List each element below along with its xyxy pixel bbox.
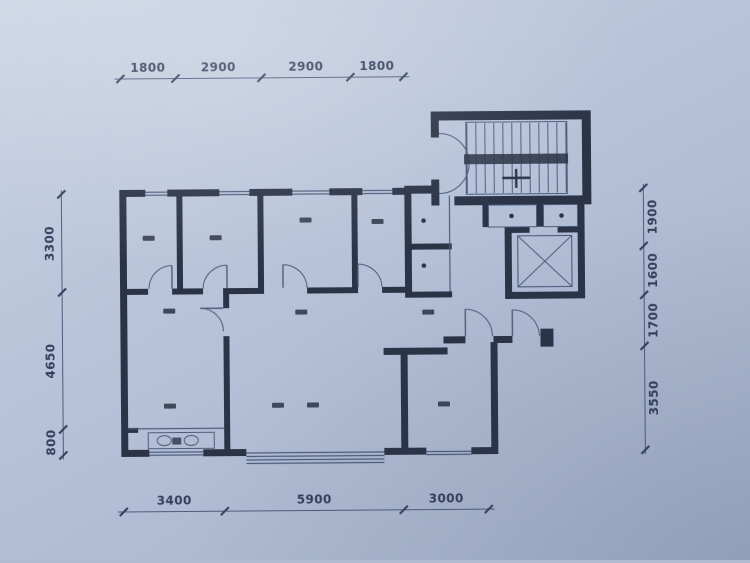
room-label-mark: [295, 310, 307, 315]
stair-wall: [431, 179, 439, 205]
wall-segment: [471, 447, 498, 454]
elevator-wall: [505, 227, 530, 233]
wall-segment: [172, 288, 203, 294]
dim-label-right-2: 1700: [646, 303, 660, 338]
dimension-line-bottom: 340059003000: [118, 491, 495, 516]
wall-segment: [249, 189, 292, 196]
wall-segment: [227, 288, 264, 294]
door-unit-entry-right-arc: [512, 310, 539, 336]
service-shafts: [421, 204, 585, 268]
shaft-wall: [577, 204, 584, 226]
screenshot-root: { "colors": { "paper": "#b7c3d9", "ink":…: [0, 0, 750, 560]
dim-label-left-0: 3300: [43, 226, 57, 261]
dim-label-left-1: 4650: [43, 343, 57, 378]
elevator-shaft: [505, 226, 586, 299]
dimension-line-top: 1800290029001800: [114, 59, 409, 83]
wall-segment: [203, 449, 246, 456]
door-unit-entry-left-arc: [465, 309, 492, 336]
shaft-dot: [421, 218, 426, 223]
room-label-mark: [163, 309, 175, 314]
dim-line: [118, 509, 495, 512]
room-label-mark: [307, 402, 319, 407]
sink-fitting: [172, 438, 181, 445]
balcony-railing-line: [246, 462, 384, 463]
room-label-mark: [372, 219, 384, 224]
dim-label-left-2: 800: [44, 429, 58, 455]
room-label-mark: [438, 401, 450, 406]
bay-window-inner-line: [128, 428, 224, 429]
stair-wall: [582, 110, 592, 204]
stair-center-rail: [464, 153, 568, 164]
wall-segment: [405, 243, 452, 249]
wall-segment: [540, 329, 553, 347]
door-swings: [149, 263, 540, 339]
balcony-railing-line: [246, 455, 384, 456]
wall-segment: [384, 347, 448, 355]
dim-label-bottom-0: 3400: [157, 493, 192, 507]
wall-segment: [401, 348, 409, 448]
room-label-mark: [143, 236, 155, 241]
wall-segment: [443, 336, 465, 343]
wall-segment: [223, 336, 230, 449]
room-label-mark: [164, 404, 176, 409]
balcony-railing-line: [246, 452, 384, 453]
room-label-mark: [300, 217, 312, 222]
floor-plan-drawing: 1800290029001800340059003000330046508001…: [0, 0, 750, 563]
door-bathroom-arc: [358, 264, 382, 287]
dim-label-right-1: 1600: [646, 253, 660, 288]
door-kitchen-arc: [200, 308, 223, 331]
door-bedroom-2-arc: [203, 265, 227, 288]
wall-segment: [490, 342, 498, 447]
wall-segment: [223, 288, 229, 308]
balcony-railing-line: [246, 459, 384, 460]
dim-label-bottom-1: 5900: [297, 492, 332, 506]
fixtures: [148, 432, 214, 449]
dim-label-top-3: 1800: [359, 59, 394, 73]
wall-segment: [382, 287, 405, 293]
wall-segment: [257, 194, 264, 288]
wall-segment: [176, 195, 183, 289]
door-bedroom-1-arc: [149, 266, 172, 289]
wall-segment: [167, 189, 219, 196]
dim-line: [61, 190, 63, 459]
shaft-edge-line: [449, 195, 450, 291]
stairwell: [431, 110, 592, 205]
shaft-dot: [559, 213, 564, 218]
dimension-line-right: 1900160017003550: [639, 184, 661, 454]
stair-wall: [431, 110, 591, 120]
elevator-wall: [505, 227, 513, 299]
shaft-wall: [482, 205, 488, 227]
dim-label-top-0: 1800: [130, 61, 165, 75]
dimension-line-left: 33004650800: [42, 190, 67, 459]
wall-segment: [121, 450, 149, 457]
walls: [119, 185, 554, 457]
dim-label-top-2: 2900: [288, 59, 323, 73]
wall-segment: [351, 193, 358, 287]
dim-label-right-0: 1900: [645, 199, 659, 234]
wall-segment: [493, 336, 512, 343]
stair-wall: [431, 111, 439, 137]
wall-segment: [405, 291, 452, 297]
room-label-mark: [272, 403, 284, 408]
wall-segment: [119, 190, 128, 457]
elevator-wall: [578, 226, 586, 298]
wall-segment: [120, 289, 148, 295]
dim-label-bottom-2: 3000: [429, 491, 464, 505]
dim-label-right-3: 3550: [647, 380, 661, 415]
dim-label-top-1: 2900: [201, 60, 236, 74]
wall-segment: [384, 448, 426, 455]
elevator-wall: [505, 291, 585, 299]
wall-segment: [329, 188, 362, 195]
elevator-wall: [558, 226, 585, 232]
wall-segment: [307, 287, 358, 293]
room-label-mark: [210, 235, 222, 240]
sink-basin: [184, 435, 198, 445]
drawing-tilt-wrap: 1800290029001800340059003000330046508001…: [0, 0, 750, 563]
room-label-mark: [422, 310, 434, 315]
shaft-wall: [536, 205, 543, 227]
wall-segment: [404, 188, 412, 298]
door-bedroom-3-arc: [283, 265, 307, 288]
stair-wall: [454, 195, 582, 205]
shaft-dot: [422, 263, 427, 268]
shaft-dot: [509, 214, 514, 219]
sink-basin: [157, 436, 171, 446]
floor-plan-photo: 1800290029001800340059003000330046508001…: [0, 0, 750, 560]
